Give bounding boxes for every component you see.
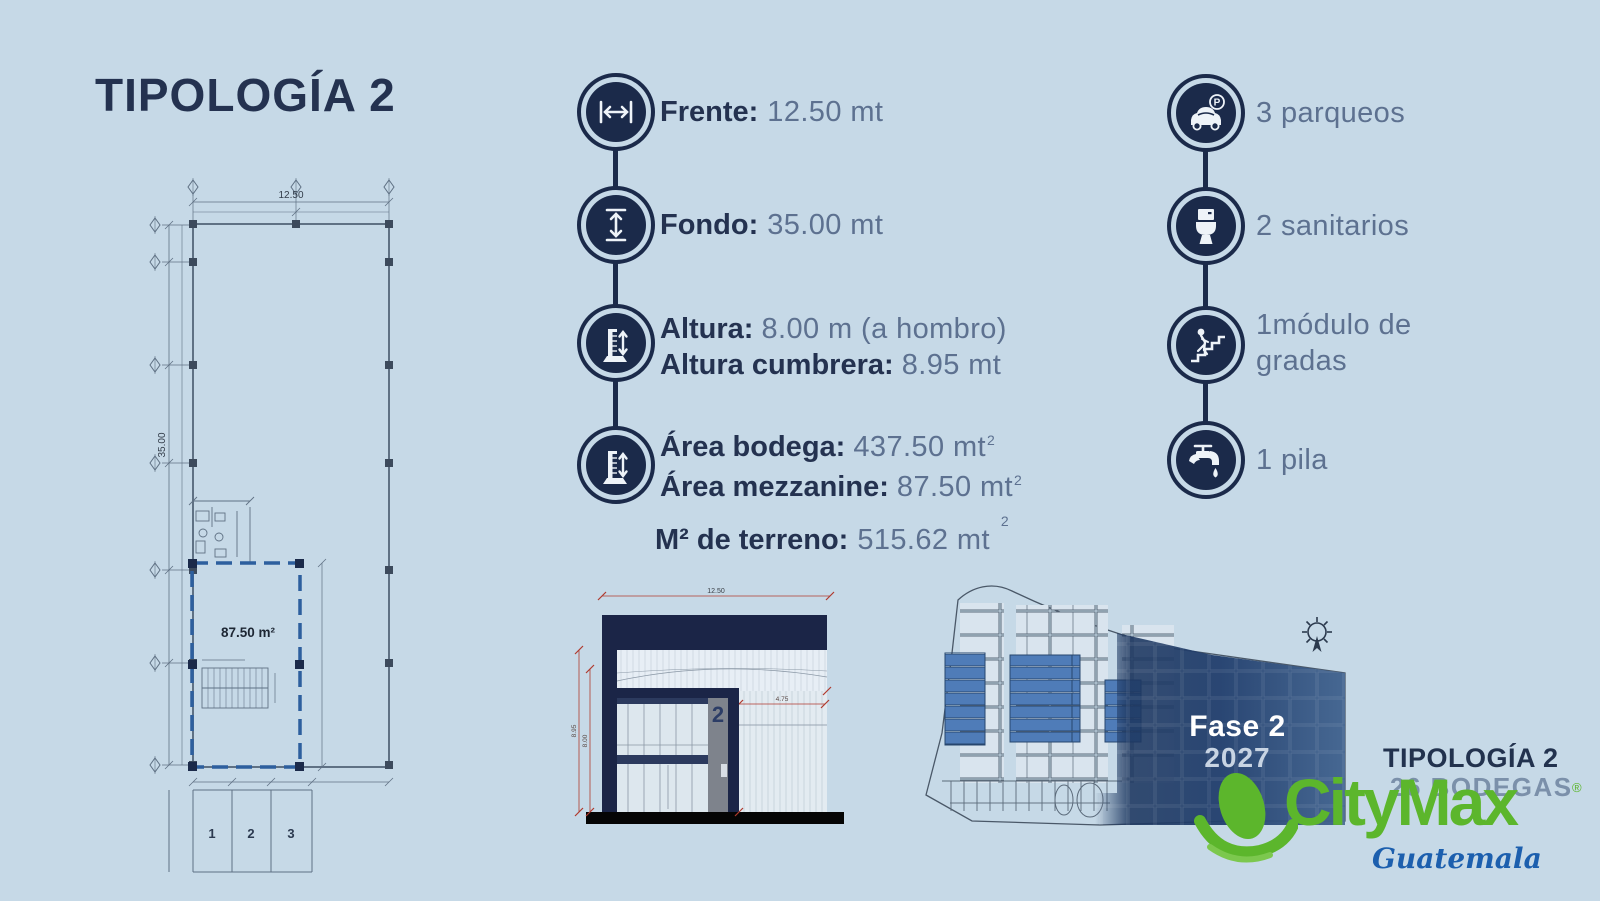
spec-altura: Altura: 8.00 m (a hombro) Altura cumbrer… xyxy=(660,311,1007,383)
amenity-gradas-label-line1: 1módulo de xyxy=(1256,307,1412,343)
spec-mezzanine-sup: 2 xyxy=(1014,472,1022,488)
frente-icon xyxy=(577,73,655,151)
citymax-logo-icon xyxy=(1194,761,1298,877)
plan-stall-1: 1 xyxy=(208,826,215,841)
spec-connector-line xyxy=(613,112,618,465)
amenity-gradas: 1módulo de gradas xyxy=(1256,307,1412,379)
spec-cumbrera-value: 8.95 mt xyxy=(902,349,1002,381)
spec-mezzanine-value: 87.50 mt xyxy=(897,471,1013,503)
faucet-icon xyxy=(1176,430,1236,490)
spec-bodega-value: 437.50 mt xyxy=(853,431,986,463)
width-arrow-icon xyxy=(586,82,646,142)
spec-fondo-label: Fondo: xyxy=(660,207,758,243)
height-gauge-icon xyxy=(586,313,646,373)
pila-icon xyxy=(1167,421,1245,499)
plan-width-dim: 12.50 xyxy=(278,190,303,201)
spec-terreno-label: M² de terreno: xyxy=(655,522,848,558)
floorplan-drawing: 12.50 35.00 xyxy=(125,145,425,893)
plan-mezzanine-area-label: 87.50 m² xyxy=(221,625,276,640)
citymax-logo-text: CityMax xyxy=(1284,764,1516,840)
spec-cumbrera-label: Altura cumbrera: xyxy=(660,349,894,381)
amenity-parqueos: 3 parqueos xyxy=(1256,95,1405,131)
spec-altura-label: Altura: xyxy=(660,313,753,345)
spec-frente-label: Frente: xyxy=(660,94,758,130)
area-icon xyxy=(577,426,655,504)
elevation-door-dim: 4.75 xyxy=(776,696,789,703)
citymax-country-label: Guatemala xyxy=(1372,842,1542,875)
area-gauge-icon xyxy=(586,435,646,495)
depth-arrow-icon xyxy=(586,195,646,255)
elevation-unit-number: 2 xyxy=(712,702,724,727)
spec-terreno-sup: 2 xyxy=(1001,503,1009,539)
page-title: TIPOLOGÍA 2 xyxy=(95,68,396,122)
siteplan-phase-label: Fase 2 xyxy=(1170,710,1305,744)
gradas-icon xyxy=(1167,306,1245,384)
parking-car-icon: P xyxy=(1176,83,1236,143)
amenity-pila-label: 1 pila xyxy=(1256,442,1328,478)
sanitarios-icon xyxy=(1167,187,1245,265)
plan-depth-dim: 35.00 xyxy=(157,432,168,457)
spec-bodega-label: Área bodega: xyxy=(660,431,845,463)
plan-mezzanine-outline xyxy=(192,563,300,767)
stairs-person-icon xyxy=(1176,315,1236,375)
amenities-connector-line xyxy=(1203,113,1208,460)
spec-mezzanine-label: Área mezzanine: xyxy=(660,471,889,503)
elevation-height-outer-dim: 8.95 xyxy=(571,724,578,737)
compass-icon xyxy=(1295,612,1339,660)
registered-mark: ® xyxy=(1572,780,1582,795)
flyer-canvas: TIPOLOGÍA 2 12.50 xyxy=(0,0,1600,901)
elevation-height-inner-dim: 8.00 xyxy=(582,734,589,747)
spec-bodega-sup: 2 xyxy=(987,432,995,448)
spec-terreno: M² de terreno: 515.62 mt2 xyxy=(655,522,1009,558)
spec-terreno-value: 515.62 mt xyxy=(857,522,990,558)
amenity-parqueos-label: 3 parqueos xyxy=(1256,95,1405,131)
altura-icon xyxy=(577,304,655,382)
amenity-gradas-label-line2: gradas xyxy=(1256,343,1412,379)
fondo-icon xyxy=(577,186,655,264)
spec-frente: Frente: 12.50 mt xyxy=(660,94,883,130)
amenity-sanitarios-label: 2 sanitarios xyxy=(1256,208,1409,244)
spec-frente-value: 12.50 mt xyxy=(767,94,883,130)
spec-altura-value: 8.00 m (a hombro) xyxy=(762,313,1007,345)
spec-fondo: Fondo: 35.00 mt xyxy=(660,207,883,243)
svg-text:P: P xyxy=(1214,98,1221,109)
plan-stall-2: 2 xyxy=(247,826,254,841)
elevation-drawing: 12.50 4 xyxy=(570,585,860,830)
amenity-pila: 1 pila xyxy=(1256,442,1328,478)
parqueos-icon: P xyxy=(1167,74,1245,152)
spec-fondo-value: 35.00 mt xyxy=(767,207,883,243)
elevation-width-dim: 12.50 xyxy=(707,588,725,595)
toilet-icon xyxy=(1176,196,1236,256)
spec-areas: Área bodega: 437.50 mt2 Área mezzanine: … xyxy=(660,429,1022,509)
amenity-sanitarios: 2 sanitarios xyxy=(1256,208,1409,244)
plan-stall-3: 3 xyxy=(287,826,294,841)
